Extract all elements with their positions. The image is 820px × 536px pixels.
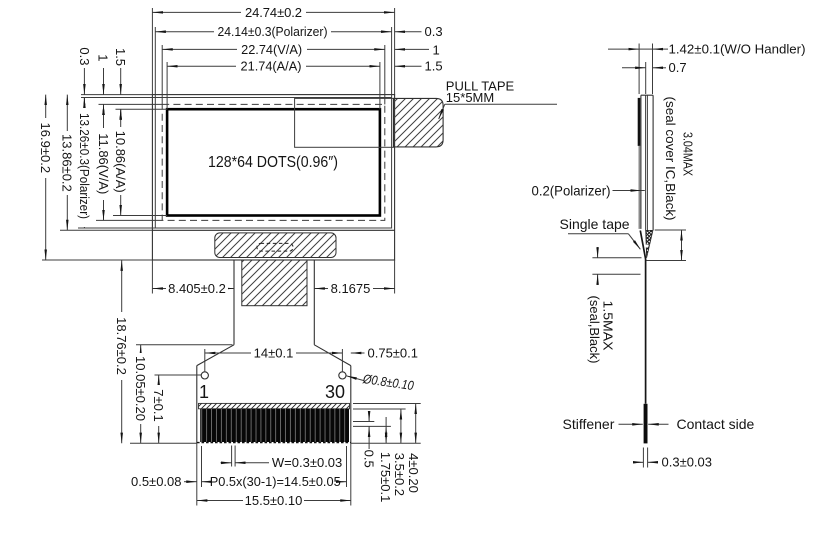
svg-text:13.86±0.2: 13.86±0.2 xyxy=(60,134,75,192)
svg-text:4±0.20: 4±0.20 xyxy=(406,453,421,493)
svg-text:8.1675: 8.1675 xyxy=(331,281,371,296)
svg-text:1: 1 xyxy=(199,382,209,402)
svg-text:21.74(A/A): 21.74(A/A) xyxy=(241,59,302,74)
svg-text:22.74(V/A): 22.74(V/A) xyxy=(241,42,302,57)
svg-text:15*5MM: 15*5MM xyxy=(446,90,494,105)
svg-text:128*64 DOTS(0.96″): 128*64 DOTS(0.96″) xyxy=(208,154,338,171)
svg-text:30: 30 xyxy=(325,382,345,402)
svg-text:W=0.3±0.03: W=0.3±0.03 xyxy=(272,455,342,470)
svg-text:13.26±0.3(Polarizer): 13.26±0.3(Polarizer) xyxy=(77,113,92,219)
svg-text:0.5: 0.5 xyxy=(362,450,377,468)
svg-text:0.7: 0.7 xyxy=(669,60,687,75)
svg-text:0.3±0.03: 0.3±0.03 xyxy=(662,455,713,470)
svg-text:3.04MAX: 3.04MAX xyxy=(680,132,695,176)
svg-text:24.74±0.2: 24.74±0.2 xyxy=(245,5,302,20)
svg-text:0.2(Polarizer): 0.2(Polarizer) xyxy=(532,182,611,198)
svg-text:24.14±0.3(Polarizer): 24.14±0.3(Polarizer) xyxy=(218,24,328,39)
svg-text:16.9±0.2: 16.9±0.2 xyxy=(38,123,53,174)
svg-text:3.5±0.2: 3.5±0.2 xyxy=(392,453,407,496)
svg-text:18.76±0.2: 18.76±0.2 xyxy=(114,317,129,375)
svg-text:0.5±0.08: 0.5±0.08 xyxy=(131,474,182,489)
svg-text:0.3: 0.3 xyxy=(425,24,443,39)
svg-text:Contact side: Contact side xyxy=(677,416,755,432)
svg-text:1.75±0.1: 1.75±0.1 xyxy=(378,452,393,503)
svg-text:10.05±0.20: 10.05±0.20 xyxy=(133,356,148,421)
svg-text:15.5±0.10: 15.5±0.10 xyxy=(245,493,303,508)
svg-text:Single tape: Single tape xyxy=(560,216,630,232)
svg-text:Stiffener: Stiffener xyxy=(563,416,615,432)
svg-text:1: 1 xyxy=(433,42,440,57)
svg-text:(seal cover IC,Black): (seal cover IC,Black) xyxy=(663,97,678,221)
svg-text:1.42±0.1(W/O Handler): 1.42±0.1(W/O Handler) xyxy=(669,42,806,57)
svg-text:0.3: 0.3 xyxy=(77,47,92,65)
svg-text:10.86(A/A): 10.86(A/A) xyxy=(113,131,128,193)
svg-text:1.5: 1.5 xyxy=(113,48,128,66)
svg-text:8.405±0.2: 8.405±0.2 xyxy=(168,281,226,296)
svg-text:1: 1 xyxy=(96,54,111,61)
svg-text:0.75±0.1: 0.75±0.1 xyxy=(368,345,419,360)
svg-text:14±0.1: 14±0.1 xyxy=(254,345,294,360)
svg-text:1.5: 1.5 xyxy=(425,59,443,74)
svg-text:7±0.1: 7±0.1 xyxy=(151,389,166,421)
svg-text:(seal,Black): (seal,Black) xyxy=(587,296,602,364)
svg-text:11.86(V/A): 11.86(V/A) xyxy=(96,133,111,194)
svg-text:P0.5x(30-1)=14.5±0.05: P0.5x(30-1)=14.5±0.05 xyxy=(210,474,341,489)
